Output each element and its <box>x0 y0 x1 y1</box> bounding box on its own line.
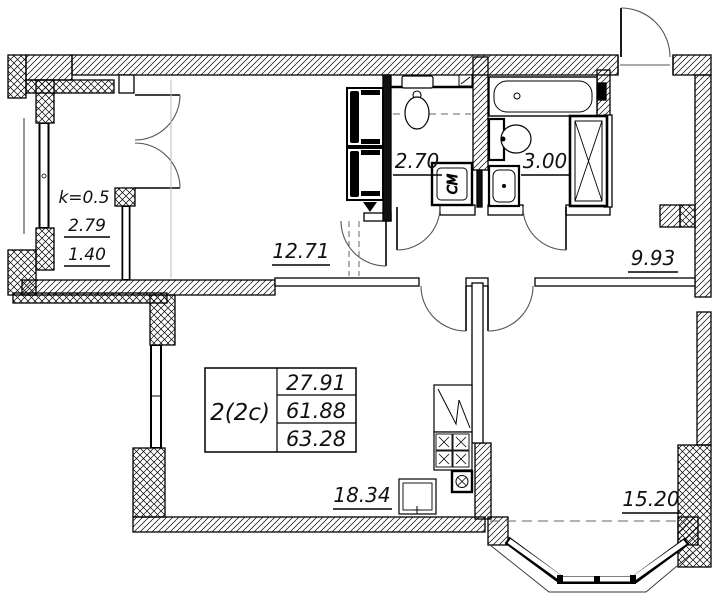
balcony-corner <box>8 250 36 295</box>
doorway-arrow-icon <box>363 202 377 212</box>
washing-machine-label: СМ <box>446 174 461 194</box>
wall-wc-divider-lower <box>477 170 482 207</box>
partition-hall-left <box>275 278 419 286</box>
vent-grille-icon <box>459 75 472 86</box>
hallway-area-label: 9.93 <box>631 246 676 270</box>
bathroom-area-label: 3.00 <box>523 149 568 173</box>
partition-wc-south <box>440 205 475 215</box>
bedroom-door <box>488 286 533 331</box>
entrance-opening <box>618 55 673 75</box>
bath-cabinet <box>570 116 607 206</box>
balcony-coefficient-label: k=0.5 <box>58 188 109 208</box>
wall-top-right-corner <box>673 55 711 75</box>
wall-wc-west <box>383 75 391 221</box>
bathroom-door <box>523 207 566 250</box>
balcony-partition-top <box>119 75 134 93</box>
room-top-door <box>341 221 386 266</box>
wall-top-left-block <box>26 55 72 80</box>
floor-plan-drawing: СМ <box>0 0 713 600</box>
wc-area-label: 2.70 <box>395 149 440 173</box>
bedroom-area-label: 15.20 <box>622 487 679 511</box>
bathtub <box>489 77 597 116</box>
bay-mullion <box>630 575 636 584</box>
area-living-value: 27.91 <box>286 371 346 395</box>
corner-top-left <box>8 55 26 98</box>
area-main-value: 61.88 <box>286 399 346 423</box>
living-left-pier-top <box>150 295 175 345</box>
balcony-area-reduced-label: 1.40 <box>68 245 106 265</box>
balcony-pier-bottom <box>36 228 54 270</box>
wc-door <box>397 207 440 250</box>
bay-window <box>507 540 687 584</box>
kitchen-counter <box>434 385 472 432</box>
wall-wc-bath-divider <box>473 57 488 170</box>
bath-basin <box>489 166 519 206</box>
living-area-label: 18.34 <box>333 483 390 507</box>
toilet <box>402 76 433 129</box>
kitchen-sink <box>399 479 436 514</box>
wardrobe <box>347 88 383 146</box>
apartment-info-table: 2(2c) 27.91 61.88 63.28 <box>205 368 356 452</box>
balcony-partition-pier <box>115 188 135 206</box>
entrance-door <box>621 8 670 57</box>
living-left-pier-bottom <box>133 448 165 517</box>
apartment-type-label: 2(2c) <box>210 400 270 426</box>
bay-mullion <box>557 575 563 584</box>
bay-mullion <box>594 576 600 584</box>
partition-lower <box>475 443 491 519</box>
area-total-value: 63.28 <box>286 427 346 451</box>
partition-living-bedroom <box>472 283 483 443</box>
electric-panel-icon <box>452 471 472 492</box>
hall-pier-cap <box>680 205 695 227</box>
wall-middle-strip <box>13 293 167 303</box>
wall-right-upper <box>695 75 711 297</box>
balcony-french-door <box>135 95 180 188</box>
wardrobe <box>347 148 383 200</box>
balcony-pier-top <box>36 80 54 123</box>
hall-pier <box>660 205 680 227</box>
room-top-area-label: 12.71 <box>272 239 329 263</box>
wall-right-lower <box>697 312 711 445</box>
wall-bottom <box>133 517 485 532</box>
living-door <box>421 286 466 331</box>
bath-wall-fitting <box>598 83 606 100</box>
wall-top <box>72 55 618 75</box>
partition-hall-right <box>535 278 695 286</box>
floor-plan: СМ <box>0 0 713 600</box>
stove <box>434 432 472 470</box>
balcony-area-label: 2.79 <box>68 216 106 236</box>
